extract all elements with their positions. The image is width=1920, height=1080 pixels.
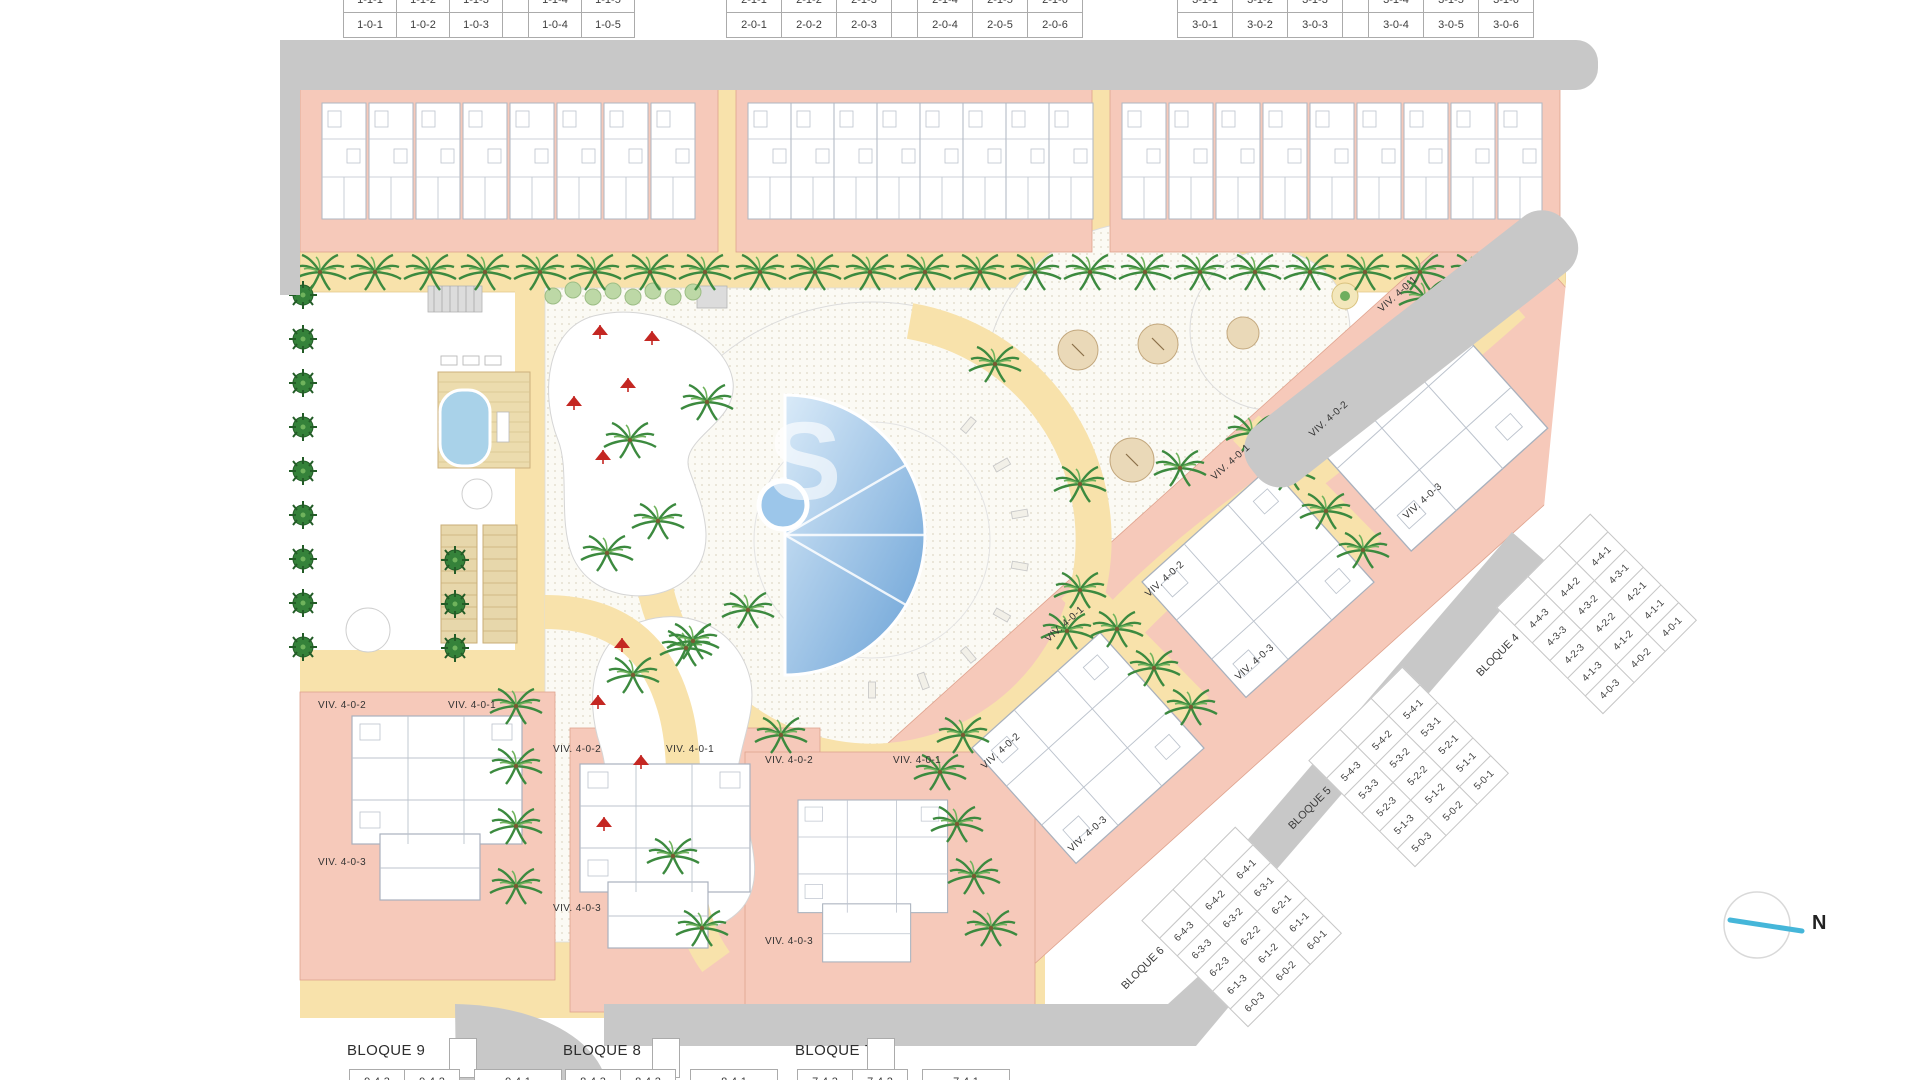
site-plan-drawing	[0, 0, 1920, 1080]
garden-trees	[289, 281, 469, 662]
kids-pool	[440, 390, 490, 466]
round-spa-pool	[759, 481, 807, 529]
road-top	[295, 40, 1598, 90]
garden-pergolas	[441, 525, 517, 643]
garden-benches	[441, 356, 501, 365]
site-plan-page: 1-1-11-1-21-1-31-1-41-1-51-0-11-0-21-0-3…	[0, 0, 1920, 1080]
townhouse-units	[322, 103, 1542, 219]
garden-deck	[438, 372, 530, 468]
planter-shrub	[1340, 291, 1350, 301]
road-left-strip	[280, 40, 300, 295]
